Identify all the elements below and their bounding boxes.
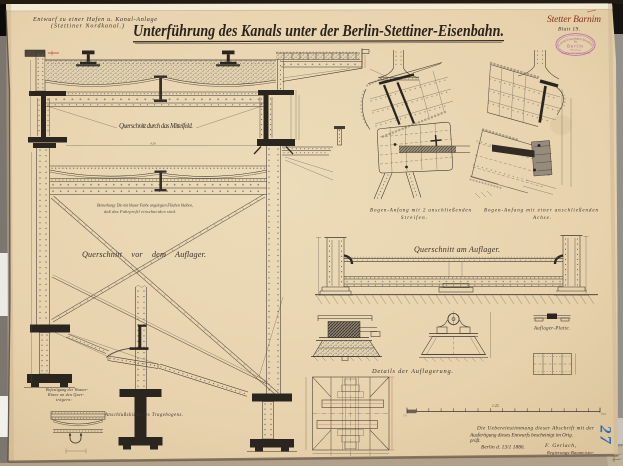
svg-text:Berlin: Berlin	[567, 43, 584, 48]
svg-text:Unterführung des Kanals unter: Unterführung des Kanals unter der Berlin…	[133, 21, 504, 40]
svg-text:Ausfertigung dieses Entwurfs b: Ausfertigung dieses Entwurfs bescheinigt…	[469, 432, 573, 439]
svg-text:Querschnitt am Auflager.: Querschnitt am Auflager.	[414, 245, 500, 254]
svg-text:Anschlußskizze des Tragebogens: Anschlußskizze des Tragebogens.	[104, 413, 183, 418]
svg-text:Querschnitt durch das Mittelfe: Querschnitt durch das Mittelfeld.	[119, 123, 193, 130]
svg-text:Streifen.: Streifen.	[401, 216, 427, 221]
svg-text:27: 27	[597, 425, 614, 446]
svg-text:Stetter Barnim: Stetter Barnim	[547, 15, 601, 25]
svg-text:trägern:: trägern:	[56, 397, 73, 402]
svg-text:daß das Fahrprofil einschneide: daß das Fahrprofil einschneiden sind.	[104, 209, 176, 214]
svg-text:Querschnitt vor dem Auflager.: Querschnitt vor dem Auflager.	[82, 250, 206, 259]
svg-text:Regierungs-Baumeister.: Regierungs-Baumeister.	[546, 450, 594, 455]
svg-text:Details der Auflagerung.: Details der Auflagerung.	[371, 368, 453, 375]
svg-text:25,0: 25,0	[601, 413, 606, 416]
svg-text:(Stettiner Nordkanal.): (Stettiner Nordkanal.)	[51, 23, 124, 30]
svg-text:F. Gerlach,: F. Gerlach,	[544, 443, 577, 449]
svg-text:Blatt 19.: Blatt 19.	[558, 27, 580, 33]
svg-text:Bogen-Anfang mit einer anschli: Bogen-Anfang mit einer anschließenden	[484, 209, 599, 214]
svg-text:1:25.: 1:25.	[492, 404, 500, 408]
svg-text:Achse.: Achse.	[532, 216, 551, 221]
svg-text:Berlin d. 13/1 1886.: Berlin d. 13/1 1886.	[481, 445, 525, 451]
svg-text:Inventar-Verzeichn. No 19: Inventar-Verzeichn. No 19	[561, 52, 591, 55]
svg-text:5 0: 5 0	[403, 415, 407, 418]
svg-text:prüft.: prüft.	[469, 439, 481, 444]
svg-text:Auflager-Platte.: Auflager-Platte.	[533, 327, 570, 332]
svg-text:Bogen-Anfang mit 2 anschließen: Bogen-Anfang mit 2 anschließenden	[370, 209, 472, 214]
svg-text:Die Uebereinstimmung dieser Ab: Die Uebereinstimmung dieser Abschrift mi…	[476, 425, 595, 432]
